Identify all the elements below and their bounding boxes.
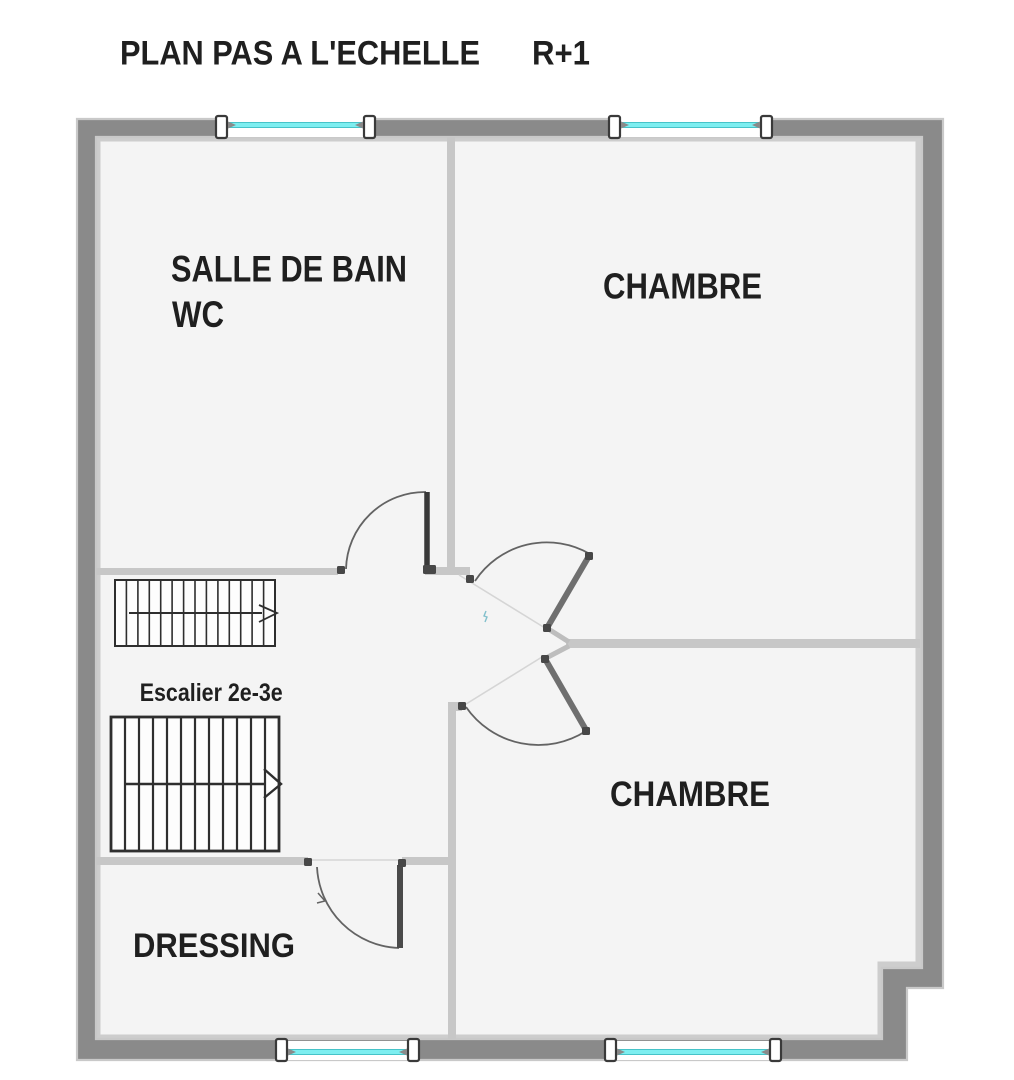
svg-text:WC: WC bbox=[172, 293, 224, 335]
svg-text:PLAN PAS A L'ECHELLE: PLAN PAS A L'ECHELLE bbox=[120, 35, 480, 73]
svg-text:SALLE DE BAIN: SALLE DE BAIN bbox=[171, 248, 407, 290]
svg-text:CHAMBRE: CHAMBRE bbox=[603, 266, 762, 307]
svg-text:CHAMBRE: CHAMBRE bbox=[610, 775, 770, 814]
svg-text:Escalier 2e-3e: Escalier 2e-3e bbox=[140, 680, 283, 707]
svg-text:DRESSING: DRESSING bbox=[133, 927, 295, 965]
svg-text:R+1: R+1 bbox=[532, 35, 590, 73]
